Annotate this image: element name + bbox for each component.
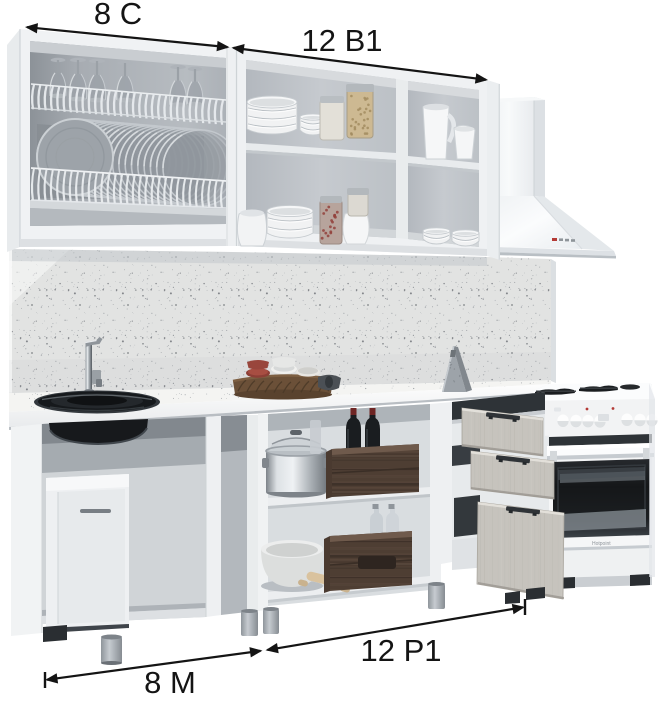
svg-text:12 B1: 12 B1	[301, 23, 382, 58]
svg-text:8 C: 8 C	[94, 0, 142, 31]
svg-text:12 P1: 12 P1	[360, 633, 441, 668]
svg-text:8 M: 8 M	[144, 665, 196, 700]
svg-text:Hotpoint: Hotpoint	[592, 541, 611, 547]
